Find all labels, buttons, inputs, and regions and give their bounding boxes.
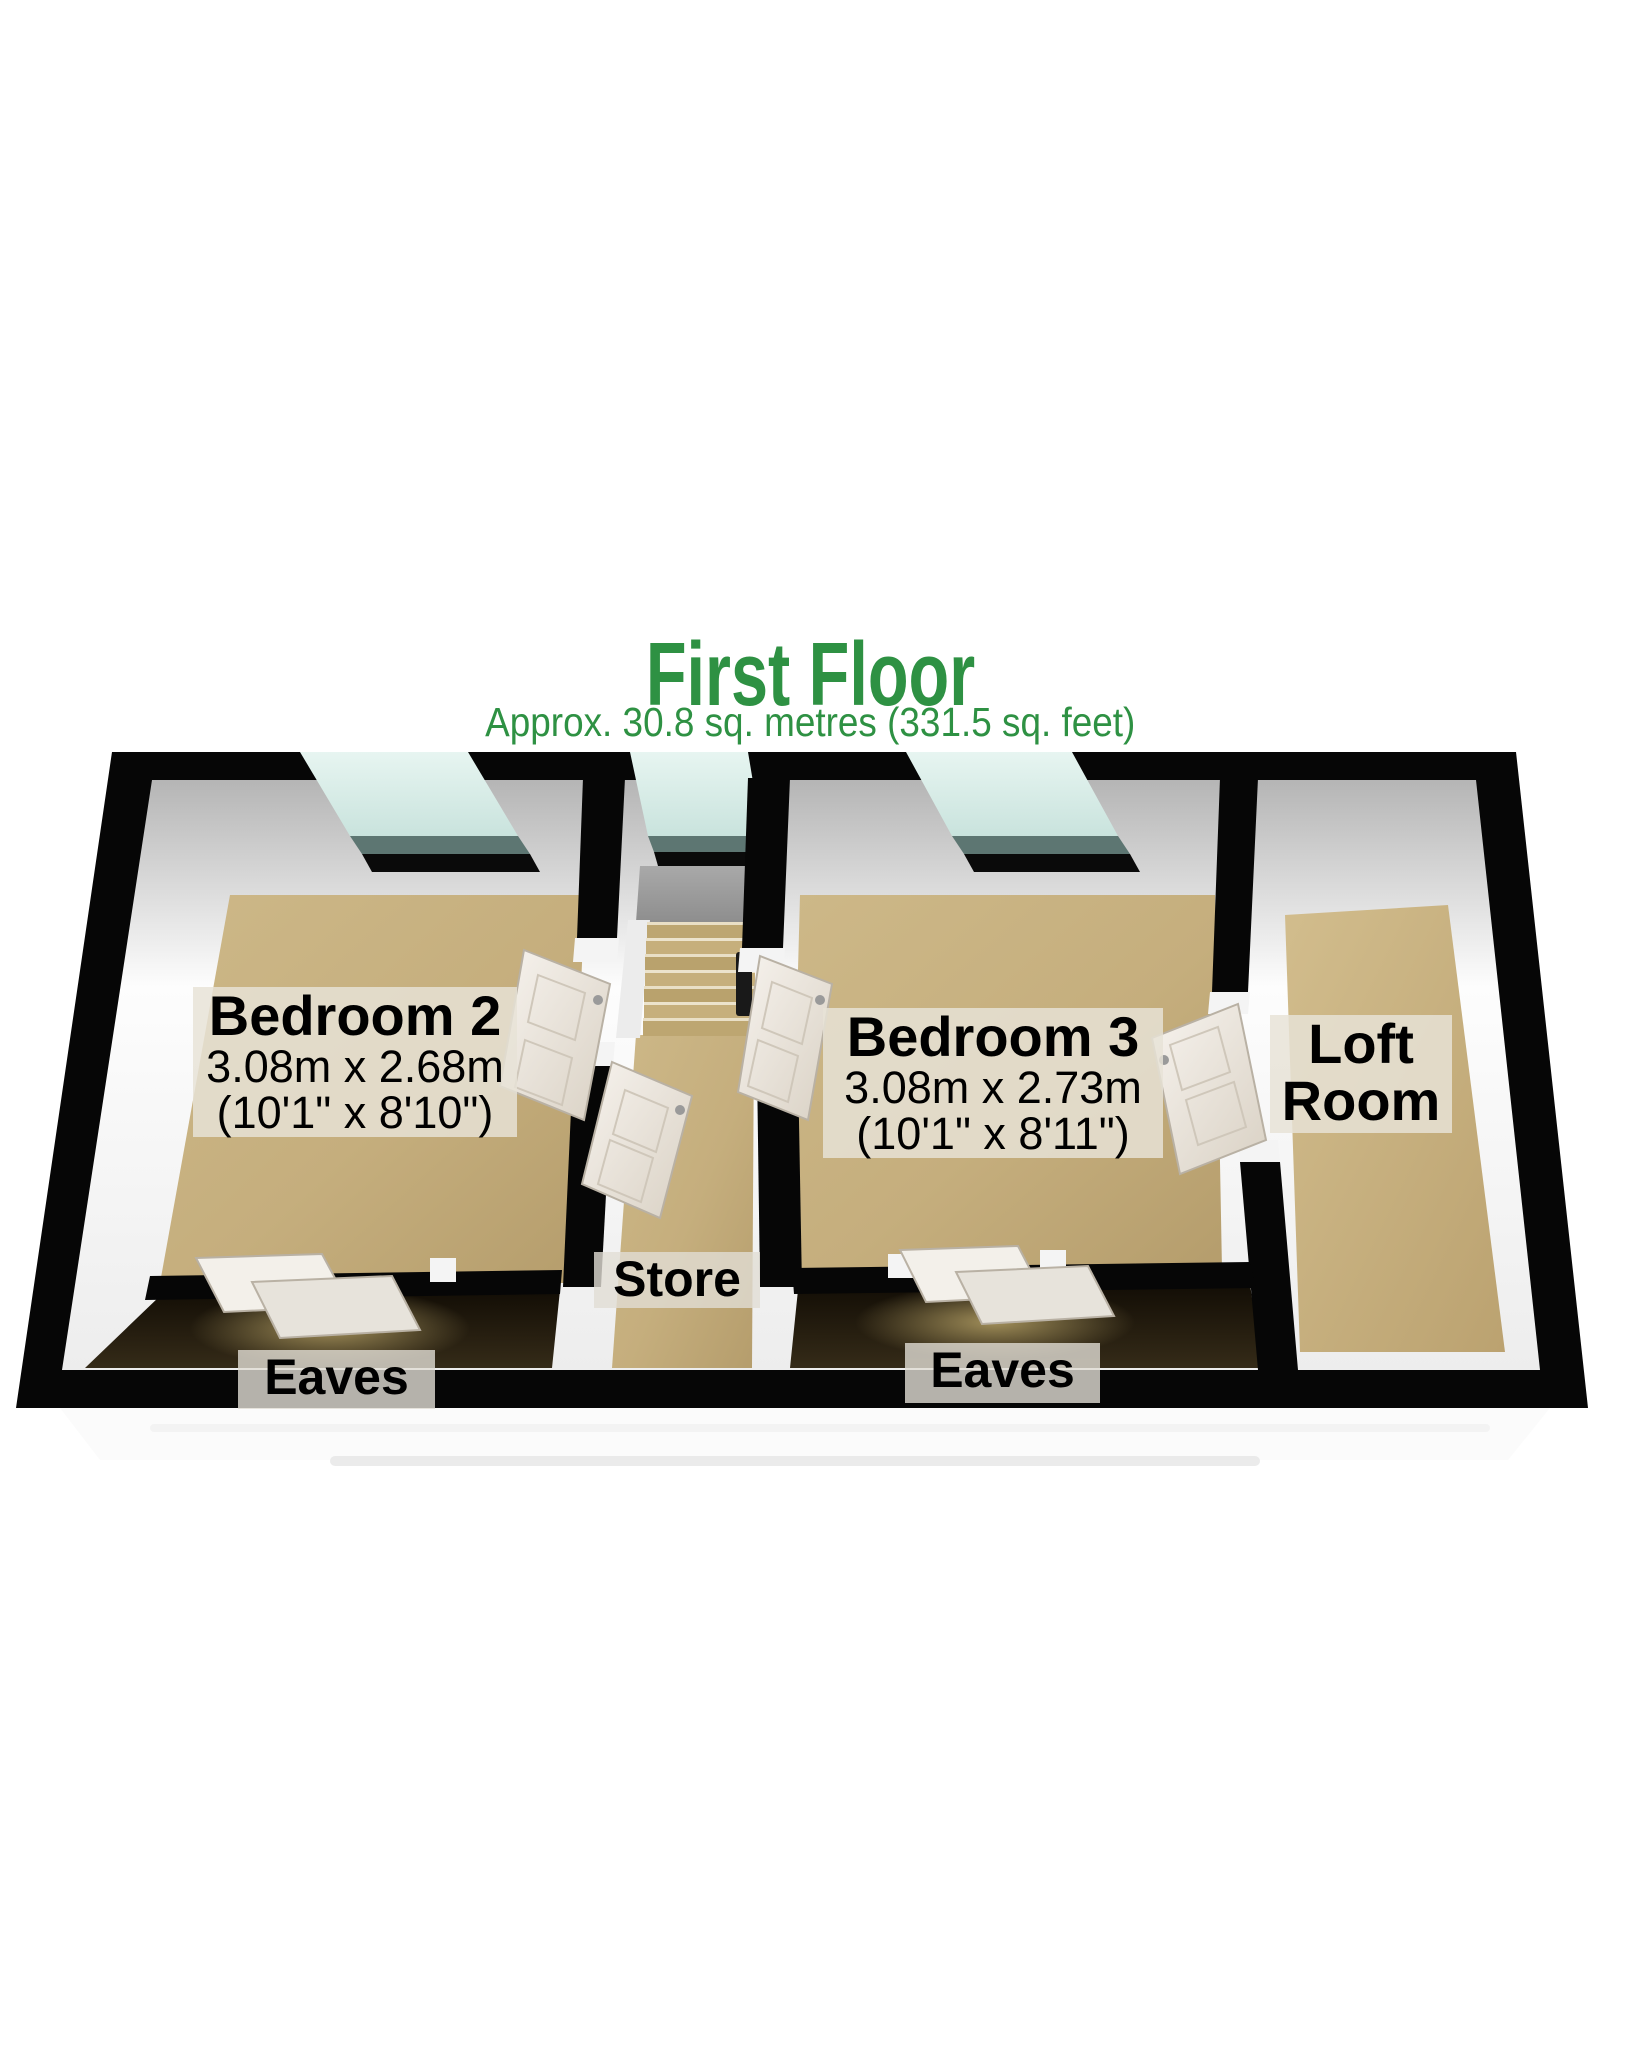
label-bedroom2: Bedroom 2 3.08m x 2.68m (10'1" x 8'10") (193, 987, 517, 1137)
label-store: Store (594, 1252, 760, 1308)
bedroom2-name: Bedroom 2 (193, 987, 517, 1044)
loft-name-line1: Loft (1270, 1015, 1452, 1072)
store-name: Store (613, 1251, 741, 1307)
label-eaves-right: Eaves (905, 1343, 1100, 1403)
wall-stairs-bedroom3 (742, 778, 790, 948)
label-bedroom3: Bedroom 3 3.08m x 2.73m (10'1" x 8'11") (823, 1008, 1163, 1158)
bedroom3-dimensions-imperial: (10'1" x 8'11") (823, 1111, 1163, 1157)
eaves-left-name: Eaves (264, 1349, 409, 1405)
label-eaves-left: Eaves (238, 1350, 435, 1409)
bedroom3-dimensions-metric: 3.08m x 2.73m (823, 1065, 1163, 1111)
label-loft-room: Loft Room (1270, 1015, 1452, 1133)
bedroom2-dimensions-metric: 3.08m x 2.68m (193, 1044, 517, 1090)
bedroom2-dimensions-imperial: (10'1" x 8'10") (193, 1090, 517, 1136)
bedroom3-name: Bedroom 3 (823, 1008, 1163, 1065)
floorplan-page: First Floor Approx. 30.8 sq. metres (331… (0, 0, 1631, 2048)
loft-name-line2: Room (1270, 1072, 1452, 1129)
plan-base-shadow (60, 1408, 1550, 1466)
doorframe-stub (573, 938, 619, 962)
eaves-right-name: Eaves (930, 1342, 1075, 1398)
stair-landing (636, 866, 756, 922)
doorframe-stub (430, 1258, 456, 1282)
wall-bedroom2-stairs (577, 778, 625, 938)
